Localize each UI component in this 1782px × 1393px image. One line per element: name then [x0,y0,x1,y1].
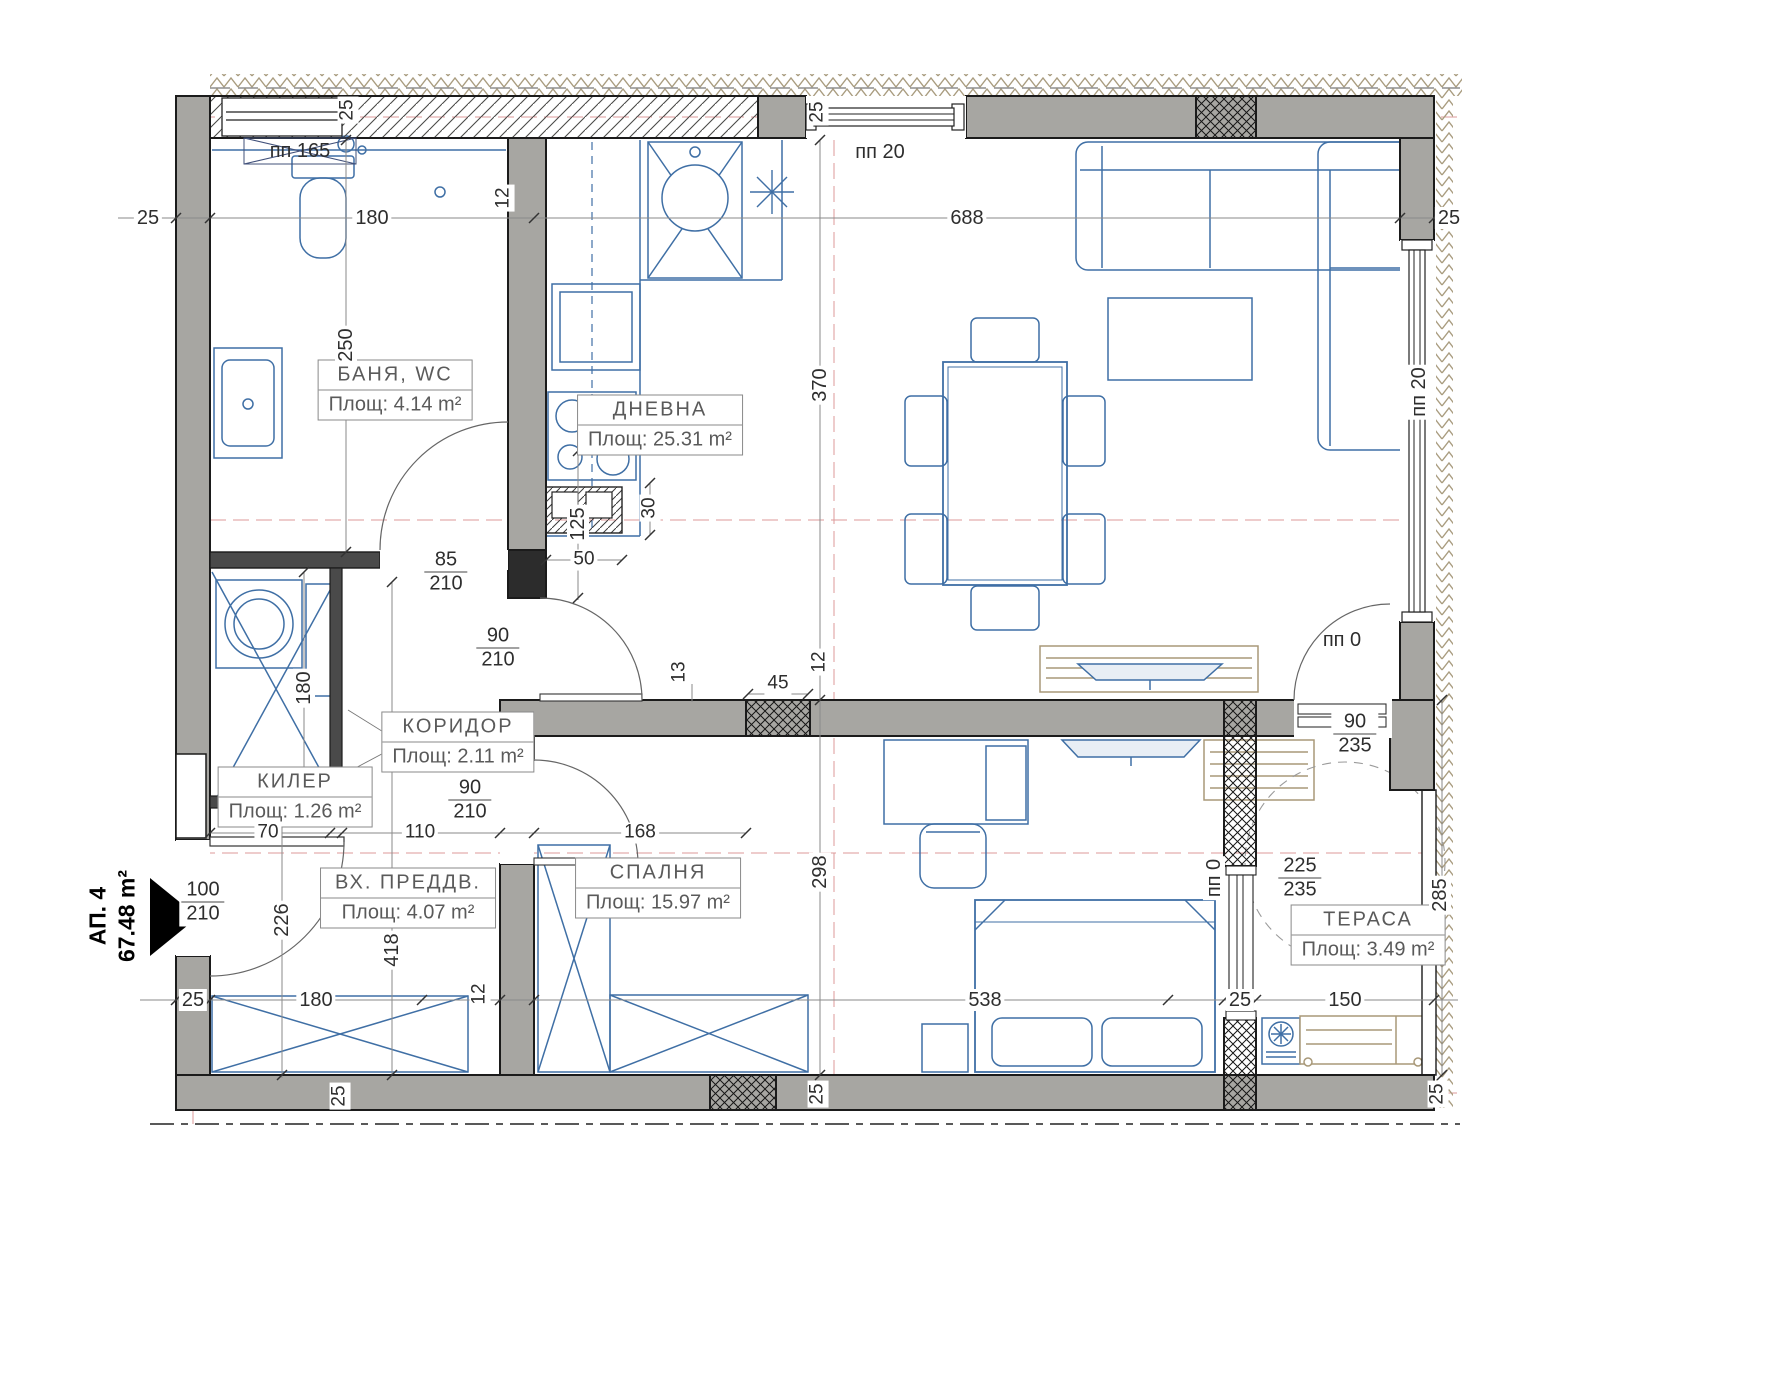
dim-wall-left: 25 [134,207,162,229]
dim-bath-depth: 250 [335,325,357,364]
bed [975,900,1215,1072]
column-top [1196,96,1256,138]
room-label-entry: ВХ. ПРЕДДВ.Площ: 4.07 m² [320,868,496,929]
dim-bot-pier: 25 [1226,989,1254,1011]
dim-living-height: 370 [809,365,831,404]
dim-closet-w: 70 [254,823,281,844]
wall-cap [508,550,546,598]
tv-bedroom [1062,740,1200,766]
label-pp165: пп 165 [267,140,334,162]
bath-sink [214,348,282,458]
label-pp0-living: пп 0 [1320,629,1364,651]
dim-closet-h: 180 [293,668,315,707]
wall-niche [176,754,206,838]
column-bottom [710,1075,776,1110]
label-pp0-terrace: пп 0 [1203,856,1225,900]
dim-wardrobe-w: 180 [296,989,335,1011]
desk [884,740,1028,824]
dim-w165-offset: 25 [338,96,359,123]
wall-bedroom-west-b [500,864,534,1075]
dim-living-width: 688 [947,207,986,229]
window-size-terrace: 225235 [1276,854,1323,903]
floor-drain [435,187,445,197]
room-label-corridor: КОРИДОРПлощ: 2.11 m² [381,712,534,773]
dim-pier: 45 [764,674,791,695]
room-label-bedroom: СПАЛНЯПлощ: 15.97 m² [575,858,741,919]
dim-wall12b: 12 [470,980,491,1007]
column-divider [746,700,810,736]
dim-terrace-h: 285 [1429,875,1451,914]
dim-shaft-w: 50 [570,550,597,571]
room-label-terrace: ТЕРАСАПлощ: 3.49 m² [1291,905,1446,966]
toilet [292,156,354,258]
dim-corridor-w: 110 [402,823,438,844]
dim-bath-width: 180 [352,207,391,229]
dim-bedroom-h: 298 [809,852,831,891]
dim-shaft-h: 30 [640,494,661,521]
label-pp20-right: пп 20 [1408,364,1430,419]
wall-right-upper [1400,138,1434,240]
door-size-bath: 85210 [422,548,469,597]
column-terrace-top [1224,700,1256,866]
bedroom-door [500,760,638,865]
door-size-entrance: 100210 [179,878,226,927]
dim-bot-t2: 25 [808,1080,829,1107]
dim-wall12: 12 [810,648,831,675]
dim-wall-offset: 13 [670,658,691,685]
ac-unit [1262,1018,1300,1064]
corner-sofa [1076,142,1426,450]
dim-corridor-len: 168 [621,823,659,844]
desk-chair [920,824,986,888]
wall-bath-bottom [210,552,380,568]
door-size-terrace: 90235 [1331,710,1378,759]
dim-bath-wall: 12 [494,184,515,211]
room-label-closet: КИЛЕРПлощ: 1.26 m² [218,767,373,828]
door-size-living: 90210 [474,624,521,673]
dim-wall-right: 25 [1435,207,1463,229]
dresser-bedroom [1204,740,1314,800]
living-door [540,598,642,701]
room-label-bath: БАНЯ, WCПлощ: 4.14 m² [318,360,473,421]
dim-bedroom-w: 538 [965,989,1004,1011]
coffee-table [1108,298,1252,380]
axis-lines [176,96,1460,1124]
apartment-label: АП. 467.48 m² [83,870,141,962]
room-label-living: ДНЕВНАПлощ: 25.31 m² [577,395,743,456]
insulation-top [210,74,1462,96]
dim-hall-len: 418 [381,930,403,969]
window-pp20-right [1400,240,1434,622]
dining-chairs [905,318,1105,630]
dim-terrace-w: 150 [1325,989,1364,1011]
wall-terrace-corner [1390,700,1434,790]
door-size-bedroom: 90210 [446,776,493,825]
floor-plan-drawing [0,0,1782,1393]
label-pp20-top: пп 20 [852,141,907,163]
wall-divider [500,700,1400,736]
dim-bot-wall: 25 [179,989,207,1011]
dimension-ticks [171,135,1447,1080]
cooktop-symbol [750,170,794,214]
dim-bot-t1: 25 [330,1082,351,1109]
floor-plan: БАНЯ, WCПлощ: 4.14 m² ДНЕВНАПлощ: 25.31 … [0,0,1782,1393]
kitchen-sink [648,142,742,278]
wall-left-upper [176,96,210,840]
dim-bot-t3: 25 [1428,1080,1449,1107]
fridge [552,284,640,370]
lounge-chair [1300,1016,1424,1066]
nightstand [922,1024,968,1072]
dim-door-offset: 125 [567,504,589,543]
window-pp20-top [806,96,966,138]
wall-left-lower [176,956,210,1078]
wall-top-pier [758,96,806,138]
dim-w20-offset: 25 [808,98,829,125]
column-terrace-low [1224,1018,1256,1110]
dim-entry-len: 226 [271,900,293,939]
dining-table [943,362,1067,585]
washing-machine [216,580,302,668]
